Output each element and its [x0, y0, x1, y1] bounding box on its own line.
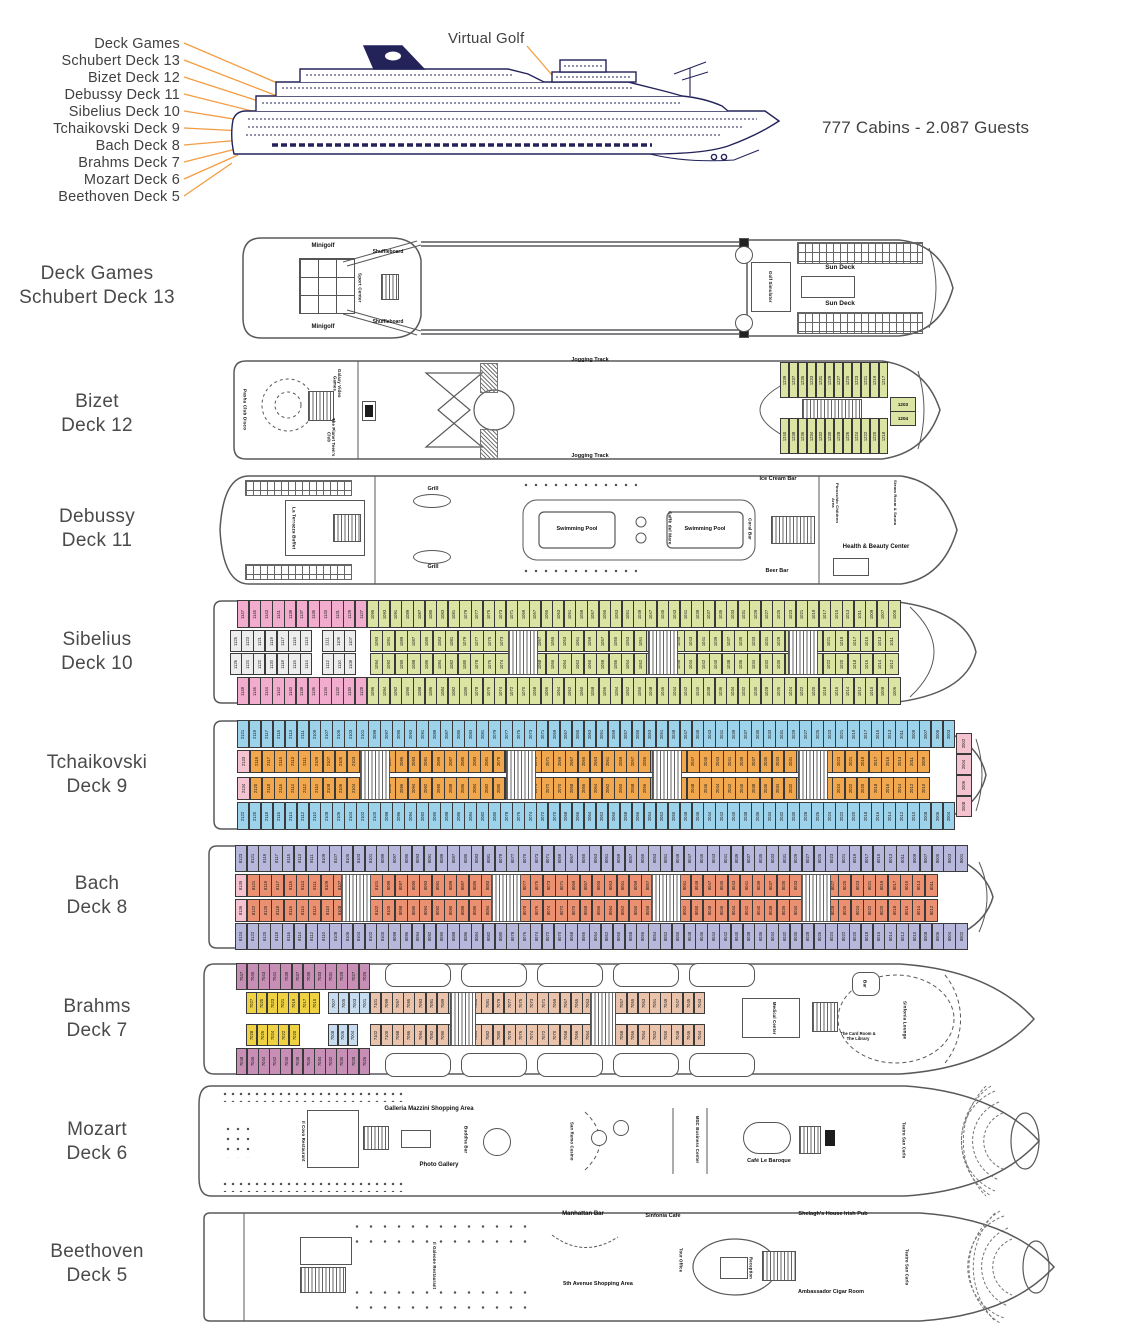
cabin-cell: 8115 [284, 874, 297, 897]
cabin-cell: 7020 [289, 1024, 300, 1046]
cabin-cell: 8028 [802, 923, 814, 950]
cabin-cell: 2096 [395, 777, 408, 800]
cabin-cell: 2035 [760, 750, 773, 773]
cabin-cell: 2112 [298, 777, 311, 800]
jogging-track-bottom-label: Jogging Track [550, 453, 630, 459]
cabin-cell: 8099 [382, 874, 395, 897]
cabin-cell: 8103 [353, 845, 365, 872]
cabin-cell: 8038 [743, 923, 755, 950]
lift-stairs-block [506, 750, 536, 800]
cabin-cell: 2109 [309, 720, 322, 748]
lift-stairs-block [450, 992, 476, 1046]
cabin-cell: 2009 [907, 720, 920, 748]
cabin-cell: 2012 [895, 802, 908, 830]
cabin-cell: 1060 [584, 653, 597, 675]
cabin-cell: 8012 [925, 899, 938, 922]
cabin-cell: 7065 [571, 992, 583, 1014]
cabin-cell: 2090 [428, 802, 441, 830]
cabin-cell: 2112 [297, 802, 310, 830]
cabin-cell: 1018 [819, 677, 831, 705]
cabin-cell: 8094 [419, 899, 432, 922]
cabin-cell: 1038 [703, 677, 715, 705]
cabin-cell: 8059 [613, 845, 625, 872]
cabin-cell: 8050 [672, 923, 684, 950]
cabin-cell: 2013 [883, 720, 896, 748]
cabin-cell: 8023 [851, 874, 864, 897]
cabin-cell: 1130 [343, 677, 355, 705]
cabin-cell: 8047 [703, 874, 716, 897]
cabin-cell: 1080 [458, 653, 471, 675]
cabin-cell: 2098 [380, 802, 393, 830]
cabin-cell: 7028 [347, 1048, 359, 1075]
cabin-cell: 8080 [495, 923, 507, 950]
cabin-cell: 1090 [401, 677, 413, 705]
cabin-cell: 2005 [931, 720, 944, 748]
cabin-cell: 8011 [925, 874, 938, 897]
deck-12-plan: Pasha Club Disco Galaxy Video Games The … [230, 357, 947, 463]
cabin-cell: 2110 [309, 802, 322, 830]
cabin-cell: 2111 [298, 750, 311, 773]
cabin-cell: 7026 [359, 1048, 371, 1075]
cabin-cell: 1010 [865, 677, 877, 705]
cabin-cell: 2096 [392, 802, 405, 830]
cabin-cell: 8106 [341, 923, 353, 950]
cabin-band-yellow-top: 7027702570237021701970177015 [246, 992, 320, 1014]
lift-stairs-block [812, 1002, 838, 1032]
cabin-cell: 2007 [919, 720, 932, 748]
cabin-cell: 8062 [617, 899, 630, 922]
cabin-cell: 2016 [881, 777, 894, 800]
cabin-cell: 1071 [506, 600, 518, 628]
cabin-cell: 2093 [408, 750, 421, 773]
cabin-cell: 1040 [709, 653, 722, 675]
cabin-cell: 2088 [440, 802, 453, 830]
cabin-cell: 2093 [404, 720, 417, 748]
swimming-pool-2-label: Swimming Pool [673, 526, 737, 532]
teatro-san-carlo-label-deck5: Teatro San Carlo [904, 1239, 908, 1295]
cabin-cell: 8035 [777, 874, 790, 897]
cabin-cell: 1083 [436, 600, 448, 628]
cabin-cell: 8110 [321, 899, 334, 922]
cabin-cell: 7003 [349, 992, 360, 1014]
cabin-cell: 8121 [247, 845, 259, 872]
cabin-cell: 1122 [253, 653, 265, 675]
cabin-cell: 8088 [456, 899, 469, 922]
cabin-cell: 7074 [526, 1024, 538, 1046]
cabin-cell: 1052 [622, 677, 634, 705]
cabin-cell: 8065 [577, 845, 589, 872]
caffe-del-mare-label: Caffè del Mare [667, 502, 672, 554]
deck-7-name: BrahmsDeck 7 [8, 995, 186, 1044]
shuffleboard-bottom-label: Shuffleboard [355, 320, 421, 326]
cabin-cell: 1094 [378, 677, 390, 705]
cabin-cell: 2022 [835, 802, 848, 830]
cabin-cell: 1218 [879, 418, 889, 454]
lift-stairs-block [798, 750, 828, 800]
cabin-cell: 2006 [931, 802, 944, 830]
cabin-cell: 8019 [875, 874, 888, 897]
cabin-cell: 1078 [471, 677, 483, 705]
cabin-cell: 8061 [617, 874, 630, 897]
cabin-cell: 8051 [660, 845, 672, 872]
cabin-cell: 8113 [296, 874, 309, 897]
cabin-cell: 8075 [530, 874, 543, 897]
cabin-cell: 8077 [506, 845, 518, 872]
lifeboat [461, 963, 527, 987]
sun-deck-top-label: Sun Deck [805, 264, 875, 271]
cabin-cell: 8116 [282, 923, 294, 950]
ambassador-cigar-room-label: Ambassador Cigar Room [788, 1289, 874, 1295]
cabin-cell: 8122 [247, 899, 260, 922]
cabin-cell: 1057 [596, 630, 609, 652]
cabin-cell: 1062 [571, 653, 584, 675]
cabin-cell: 8111 [308, 874, 321, 897]
cabin-cell: 1143 [260, 600, 272, 628]
cabin-cell: 8105 [341, 845, 353, 872]
cabin-cell: 8042 [740, 899, 753, 922]
cabin-cell: 1033 [726, 600, 738, 628]
deck-13-plan: Minigolf Minigolf Sport Center Shufflebo… [235, 232, 960, 344]
cabin-cell: 2066 [578, 777, 591, 800]
cabin-cell: 2044 [703, 802, 716, 830]
cabin-cell: 7021 [277, 992, 288, 1014]
shop-block [401, 1130, 431, 1148]
cabin-cell: 2069 [553, 750, 566, 773]
cabin-rose-left-top: 8135 [235, 874, 247, 897]
cabin-cell: 2048 [680, 802, 693, 830]
cabin-cell: 1146 [249, 677, 261, 705]
cabin-cell: 8041 [740, 874, 753, 897]
cabin-cell: 2026 [811, 802, 824, 830]
cabin-cell: 2012 [905, 777, 918, 800]
cabin-cell: 8061 [601, 845, 613, 872]
cabin-cell: 7101 [370, 992, 382, 1014]
cabin-cell: 1092 [390, 677, 402, 705]
cabin-cell: 8073 [530, 845, 542, 872]
cabin-cell: 7049 [660, 992, 672, 1014]
cabin-cell: 8095 [407, 874, 420, 897]
cabin-cell: 1057 [587, 600, 599, 628]
cabin-cell: 8031 [778, 845, 790, 872]
cabin-cell: 1082 [448, 677, 460, 705]
cabin-cell: 8042 [719, 923, 731, 950]
cabin-cell: 1043 [684, 630, 697, 652]
cabin-cell: 2032 [784, 777, 797, 800]
cabin-cell: 8018 [861, 923, 873, 950]
cabin-cell: 8063 [589, 845, 601, 872]
cabin-cell: 2117 [262, 750, 275, 773]
lift-stairs-block [771, 516, 815, 544]
lift-stairs-block [651, 874, 681, 922]
cabin-rose-left-bottom: 8136 [235, 899, 247, 922]
cabin-cell: 1058 [596, 653, 609, 675]
cabin-cell: 7022 [278, 1024, 289, 1046]
stairs-block [333, 514, 361, 542]
cabin-cell: 2086 [452, 802, 465, 830]
cabin-cell: 7097 [392, 992, 404, 1014]
cabin-cell: 2075 [512, 720, 525, 748]
swimming-pool-1-label: Swimming Pool [545, 526, 609, 532]
cabin-cell: 2111 [297, 720, 310, 748]
cabin-cell: 8123 [235, 845, 247, 872]
cabin-cell: 7027 [347, 963, 359, 990]
cabin-cell: 2036 [760, 777, 773, 800]
lift-stairs-block [508, 630, 538, 675]
cabin-cell: 1011 [854, 600, 866, 628]
cabin-cell: 7030 [336, 1048, 348, 1075]
cabin-cell: 7079 [493, 992, 505, 1014]
piano-bar-stage [483, 1128, 511, 1156]
restaurant-structure [307, 1110, 359, 1168]
cabin-cell: 8072 [542, 923, 554, 950]
cabin-cell: 8016 [873, 923, 885, 950]
cabin-cell: 8039 [752, 874, 765, 897]
cabin-cell: 1079 [458, 630, 471, 652]
cabin-cell: 2070 [548, 802, 561, 830]
san-remo-casino-label: San Remo Casino [569, 1110, 573, 1172]
cabin-cell: 1021 [823, 630, 836, 652]
cabin-cell: 2104 [344, 802, 357, 830]
cabin-cell: 2118 [262, 777, 275, 800]
cabin-cell: 7035 [303, 963, 315, 990]
lifeboat [613, 1053, 679, 1077]
cabin-cell: 7057 [615, 992, 627, 1014]
cabin-cell: 2021 [845, 750, 858, 773]
cabin-cell: 1051 [622, 600, 634, 628]
cabin-cell: 7068 [560, 1024, 572, 1046]
cabin-cell: 2006 [956, 775, 973, 796]
cabin-cell: 1061 [564, 600, 576, 628]
cabin-cell: 1012 [885, 653, 898, 675]
sun-loungers-top [797, 242, 923, 264]
cabin-cell: 8036 [754, 923, 766, 950]
cabin-cell: 1084 [433, 653, 446, 675]
cabin-cell: 1077 [471, 600, 483, 628]
cabin-cell: 1092 [382, 653, 395, 675]
cabin-cell: 1082 [445, 653, 458, 675]
cabin-cell: 1135 [308, 600, 320, 628]
cabin-cell: 8108 [329, 923, 341, 950]
health-beauty-center-label: Health & Beauty Center [821, 544, 931, 551]
cabin-cell: 7043 [258, 963, 270, 990]
cabin-cell: 2086 [456, 777, 469, 800]
cabin-cell: 7073 [526, 992, 538, 1014]
cabin-cell: 1014 [842, 677, 854, 705]
cabin-band-orange-top: 2119211721152113211121092107210521032101… [250, 750, 930, 773]
cabin-cell: 8007 [920, 845, 932, 872]
lift-icon [825, 1130, 835, 1146]
cabin-cell: 8097 [388, 845, 400, 872]
bar-stools-bottom [521, 566, 637, 578]
lift-stairs-block [363, 1126, 389, 1150]
cabin-cell: 2094 [408, 777, 421, 800]
cabin-cell: 2009 [917, 750, 930, 773]
cabin-cell: 8070 [567, 899, 580, 922]
cabin-cell: 7029 [336, 963, 348, 990]
cabin-cell: 1070 [517, 677, 529, 705]
cabin-cell: 8094 [412, 923, 424, 950]
cabin-cell: 2011 [905, 750, 918, 773]
cabin-cell: 7004 [348, 1024, 359, 1046]
casino-table [613, 1120, 629, 1136]
cabin-cell: 2034 [763, 802, 776, 830]
cabin-cell: 1059 [575, 600, 587, 628]
lifeboat [537, 963, 603, 987]
cabin-cell: 8070 [554, 923, 566, 950]
cabin-cell: 7048 [671, 1024, 683, 1046]
cabin-cell: 1050 [633, 677, 645, 705]
cabin-cell: 1086 [420, 653, 433, 675]
cabin-cell: 1086 [425, 677, 437, 705]
cabin-cell: 2050 [668, 802, 681, 830]
lift-stairs-block [799, 1126, 821, 1154]
cabin-cell: 7091 [426, 992, 438, 1014]
cabin-band-ltblue-bottom: 700870067004 [328, 1024, 358, 1046]
cabin-cell: 2082 [476, 802, 489, 830]
cabin-cell: 2067 [560, 720, 573, 748]
cabin-cell: 8096 [400, 923, 412, 950]
cabin-cell: 2109 [310, 750, 323, 773]
cabin-cell: 2069 [548, 720, 561, 748]
cabin-cell: 7042 [269, 1048, 281, 1075]
cabin-band-blue-bottom: 2122212021182116211421122110210821062104… [237, 802, 955, 830]
grill-top-label: Grill [411, 486, 455, 492]
cabin-cell: 2099 [368, 720, 381, 748]
cabin-cell: 2051 [656, 720, 669, 748]
cabin-cell: 8010 [908, 923, 920, 950]
cabin-cell: 2004 [943, 802, 956, 830]
minigolf-court [299, 258, 355, 314]
cabin-cell: 8048 [684, 923, 696, 950]
jogging-track-top-label: Jogging Track [550, 357, 630, 363]
cabin-cell: 2080 [493, 777, 506, 800]
cabin-cell: 8096 [407, 899, 420, 922]
cabin-cell: 1026 [772, 677, 784, 705]
cabin-cell: 7082 [481, 1024, 493, 1046]
cabin-cell: 2029 [787, 720, 800, 748]
grill-bottom-label: Grill [411, 564, 455, 570]
cabin-cell: 1008 [877, 677, 889, 705]
lounger-row-top [245, 480, 352, 496]
cabin-cell: 1023 [784, 600, 796, 628]
cabin-cell: 8120 [258, 923, 270, 950]
cabin-cell: 7092 [426, 1024, 438, 1046]
cabin-cell: 1068 [529, 677, 541, 705]
cabin-cell: 1015 [830, 600, 842, 628]
cabin-cell: 2003 [943, 720, 956, 748]
lifeboat [689, 1053, 755, 1077]
lift-stairs-block [491, 874, 521, 922]
cabin-cell: 2121 [237, 720, 250, 748]
cabin-cell: 2120 [250, 777, 263, 800]
cabin-cell: 1017 [848, 630, 861, 652]
cabin-cell: 2033 [772, 750, 785, 773]
sinfonia-cafe-label: Sinfonia Cafè [628, 1213, 698, 1219]
cabin-cell: 7081 [481, 992, 493, 1014]
cabin-cell: 7040 [280, 1048, 292, 1075]
cabin-cell: 7041 [269, 963, 281, 990]
cabin-cell: 8044 [707, 923, 719, 950]
cabin-cell: 1134 [319, 677, 331, 705]
cabin-cell: 8089 [436, 845, 448, 872]
cabin-cell: 2041 [715, 720, 728, 748]
cabin-cell: 2134 [237, 777, 251, 800]
cabin-cell: 1147 [237, 600, 249, 628]
cabin-cell: 2113 [285, 720, 298, 748]
cabin-cell: 2035 [751, 720, 764, 748]
stairs-block [381, 274, 399, 300]
cabin-cell: 1093 [378, 600, 390, 628]
cabin-cell: 7051 [649, 992, 661, 1014]
cabin-cell: 2024 [823, 802, 836, 830]
lifeboat [689, 963, 755, 987]
cabin-cell: 1048 [645, 677, 657, 705]
cabin-cell: 1039 [709, 630, 722, 652]
cabin-cell: 1040 [691, 677, 703, 705]
cabin-cell: 7090 [437, 1024, 449, 1046]
cabin-cell: 1020 [835, 653, 848, 675]
cabin-cell: 1007 [877, 600, 889, 628]
restaurant-tables-top [350, 1219, 530, 1249]
cabin-cell: 2032 [775, 802, 788, 830]
cabin-cell: 8119 [259, 874, 272, 897]
cabin-cell: 2076 [512, 802, 525, 830]
cabin-cell: 1015 [860, 630, 873, 652]
cabin-cell: 1036 [715, 677, 727, 705]
cabin-cell: 1018 [848, 653, 861, 675]
galaxy-video-games-label: Galaxy Video Games [332, 363, 341, 403]
lift-stairs-block [648, 630, 678, 675]
cabin-cell: 8026 [814, 923, 826, 950]
cabin-cell: 2055 [638, 750, 651, 773]
galley-structure [300, 1237, 352, 1265]
cabin-cell: 2119 [250, 750, 263, 773]
cabin-cell: 1028 [761, 677, 773, 705]
cabin-cell: 8029 [790, 845, 802, 872]
cabin-cell: 7031 [325, 963, 337, 990]
cabin-cell: 8092 [424, 923, 436, 950]
bar-label: Bar [862, 975, 867, 993]
cabin-cell: 2008 [956, 796, 973, 817]
cabin-cell: 2114 [285, 802, 298, 830]
cabin-cell: 2092 [420, 777, 433, 800]
cabin-cell: 1016 [860, 653, 873, 675]
cabin-cell: 8054 [648, 923, 660, 950]
cabin-cell: 8045 [695, 845, 707, 872]
cabin-cell: 1141 [272, 600, 284, 628]
cabin-cell: 2094 [404, 802, 417, 830]
cabin-cell: 1078 [470, 653, 483, 675]
cabin-cell: 2088 [444, 777, 457, 800]
teatro-san-carlo-label: Teatro San Carlo [901, 1110, 905, 1170]
cabin-cell: 2047 [680, 720, 693, 748]
cabin-cell: 8084 [471, 923, 483, 950]
cabin-cell: 2115 [273, 720, 286, 748]
cabin-cell: 7007 [328, 992, 339, 1014]
manhattan-bar-label: Manhattan Bar [540, 1211, 626, 1218]
lift-stairs-block [341, 874, 371, 922]
cafe-le-baroque-label: Café Le Baroque [731, 1158, 807, 1164]
capacity-label: 777 Cabins - 2.087 Guests [822, 118, 1029, 138]
cabin-cell: 8069 [567, 874, 580, 897]
cabin-cell: 1054 [610, 677, 622, 705]
cabin-cell: 2116 [274, 777, 287, 800]
cabin-cell: 7015 [309, 992, 320, 1014]
cabin-cell: 2041 [723, 750, 736, 773]
cabin-cell: 8093 [419, 874, 432, 897]
lifeboat [385, 963, 451, 987]
cabin-cell: 1217 [879, 362, 889, 398]
